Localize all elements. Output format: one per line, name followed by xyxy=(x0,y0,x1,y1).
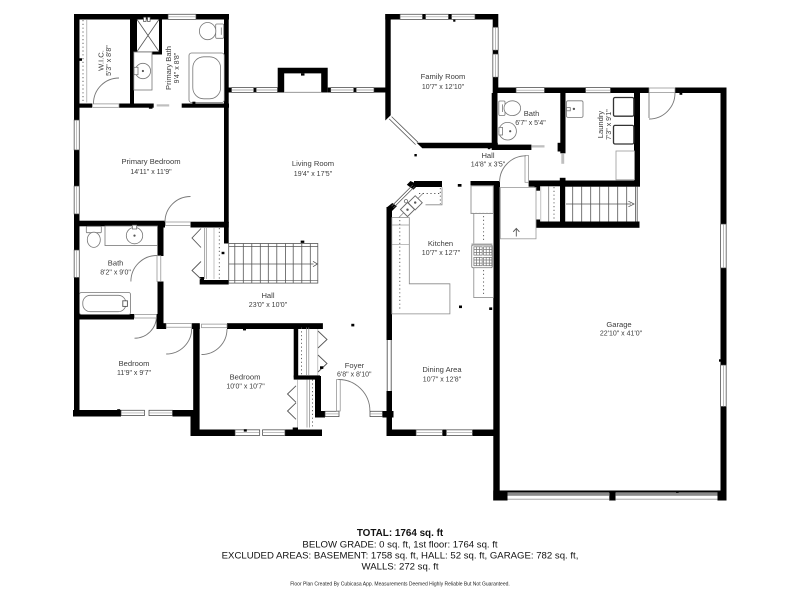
svg-text:EXCLUDED AREAS: BASEMENT: 1758: EXCLUDED AREAS: BASEMENT: 1758 sq. ft, H… xyxy=(222,551,579,562)
svg-text:TOTAL: 1764 sq. ft: TOTAL: 1764 sq. ft xyxy=(357,528,444,539)
svg-text:10'7" x 12'7": 10'7" x 12'7" xyxy=(422,250,461,257)
svg-text:Kitchen: Kitchen xyxy=(428,239,453,248)
svg-text:11'9" x 9'7": 11'9" x 9'7" xyxy=(117,370,151,377)
svg-text:BELOW GRADE: 0 sq. ft, 1st flo: BELOW GRADE: 0 sq. ft, 1st floor: 1764 s… xyxy=(302,540,497,551)
svg-text:WALLS: 272 sq. ft: WALLS: 272 sq. ft xyxy=(362,562,439,573)
svg-text:W.I.C.: W.I.C. xyxy=(97,50,106,71)
svg-text:Hall: Hall xyxy=(261,291,274,300)
svg-text:6'7" x 5'4": 6'7" x 5'4" xyxy=(515,120,546,127)
svg-text:23'0" x 10'0": 23'0" x 10'0" xyxy=(249,302,288,309)
svg-text:Laundry: Laundry xyxy=(596,111,605,139)
svg-text:Living Room: Living Room xyxy=(292,159,334,168)
svg-text:10'7" x 12'8": 10'7" x 12'8" xyxy=(423,377,462,384)
svg-text:Bedroom: Bedroom xyxy=(230,373,261,382)
svg-text:19'4" x 17'5": 19'4" x 17'5" xyxy=(294,171,333,178)
svg-text:Primary Bath: Primary Bath xyxy=(164,46,173,90)
svg-text:Bath: Bath xyxy=(108,259,124,268)
svg-text:10'0" x 10'7": 10'0" x 10'7" xyxy=(226,384,265,391)
svg-text:14'8" x 3'5": 14'8" x 3'5" xyxy=(471,162,506,169)
svg-text:6'8" x 8'10": 6'8" x 8'10" xyxy=(337,372,372,379)
svg-text:10'7" x 12'10": 10'7" x 12'10" xyxy=(422,84,465,91)
svg-text:Family Room: Family Room xyxy=(421,72,466,81)
svg-text:8'2" x 9'0": 8'2" x 9'0" xyxy=(100,270,131,277)
svg-text:5'3" x 8'8": 5'3" x 8'8" xyxy=(106,45,113,76)
svg-text:Floor Plan Created By Cubicasa: Floor Plan Created By Cubicasa App. Meas… xyxy=(290,582,510,588)
svg-text:22'10" x 41'0": 22'10" x 41'0" xyxy=(600,331,643,338)
svg-text:Primary Bedroom: Primary Bedroom xyxy=(121,157,180,166)
svg-text:Dining Area: Dining Area xyxy=(422,365,462,374)
svg-text:14'11" x 11'9": 14'11" x 11'9" xyxy=(130,169,172,176)
svg-text:Foyer: Foyer xyxy=(345,361,365,370)
svg-text:9'4" x 8'8": 9'4" x 8'8" xyxy=(174,52,181,83)
svg-text:Garage: Garage xyxy=(606,320,631,329)
svg-text:Bedroom: Bedroom xyxy=(119,359,150,368)
svg-text:Hall: Hall xyxy=(481,151,494,160)
svg-text:Bath: Bath xyxy=(524,109,540,118)
svg-text:7'3" x 9'1": 7'3" x 9'1" xyxy=(606,109,613,140)
